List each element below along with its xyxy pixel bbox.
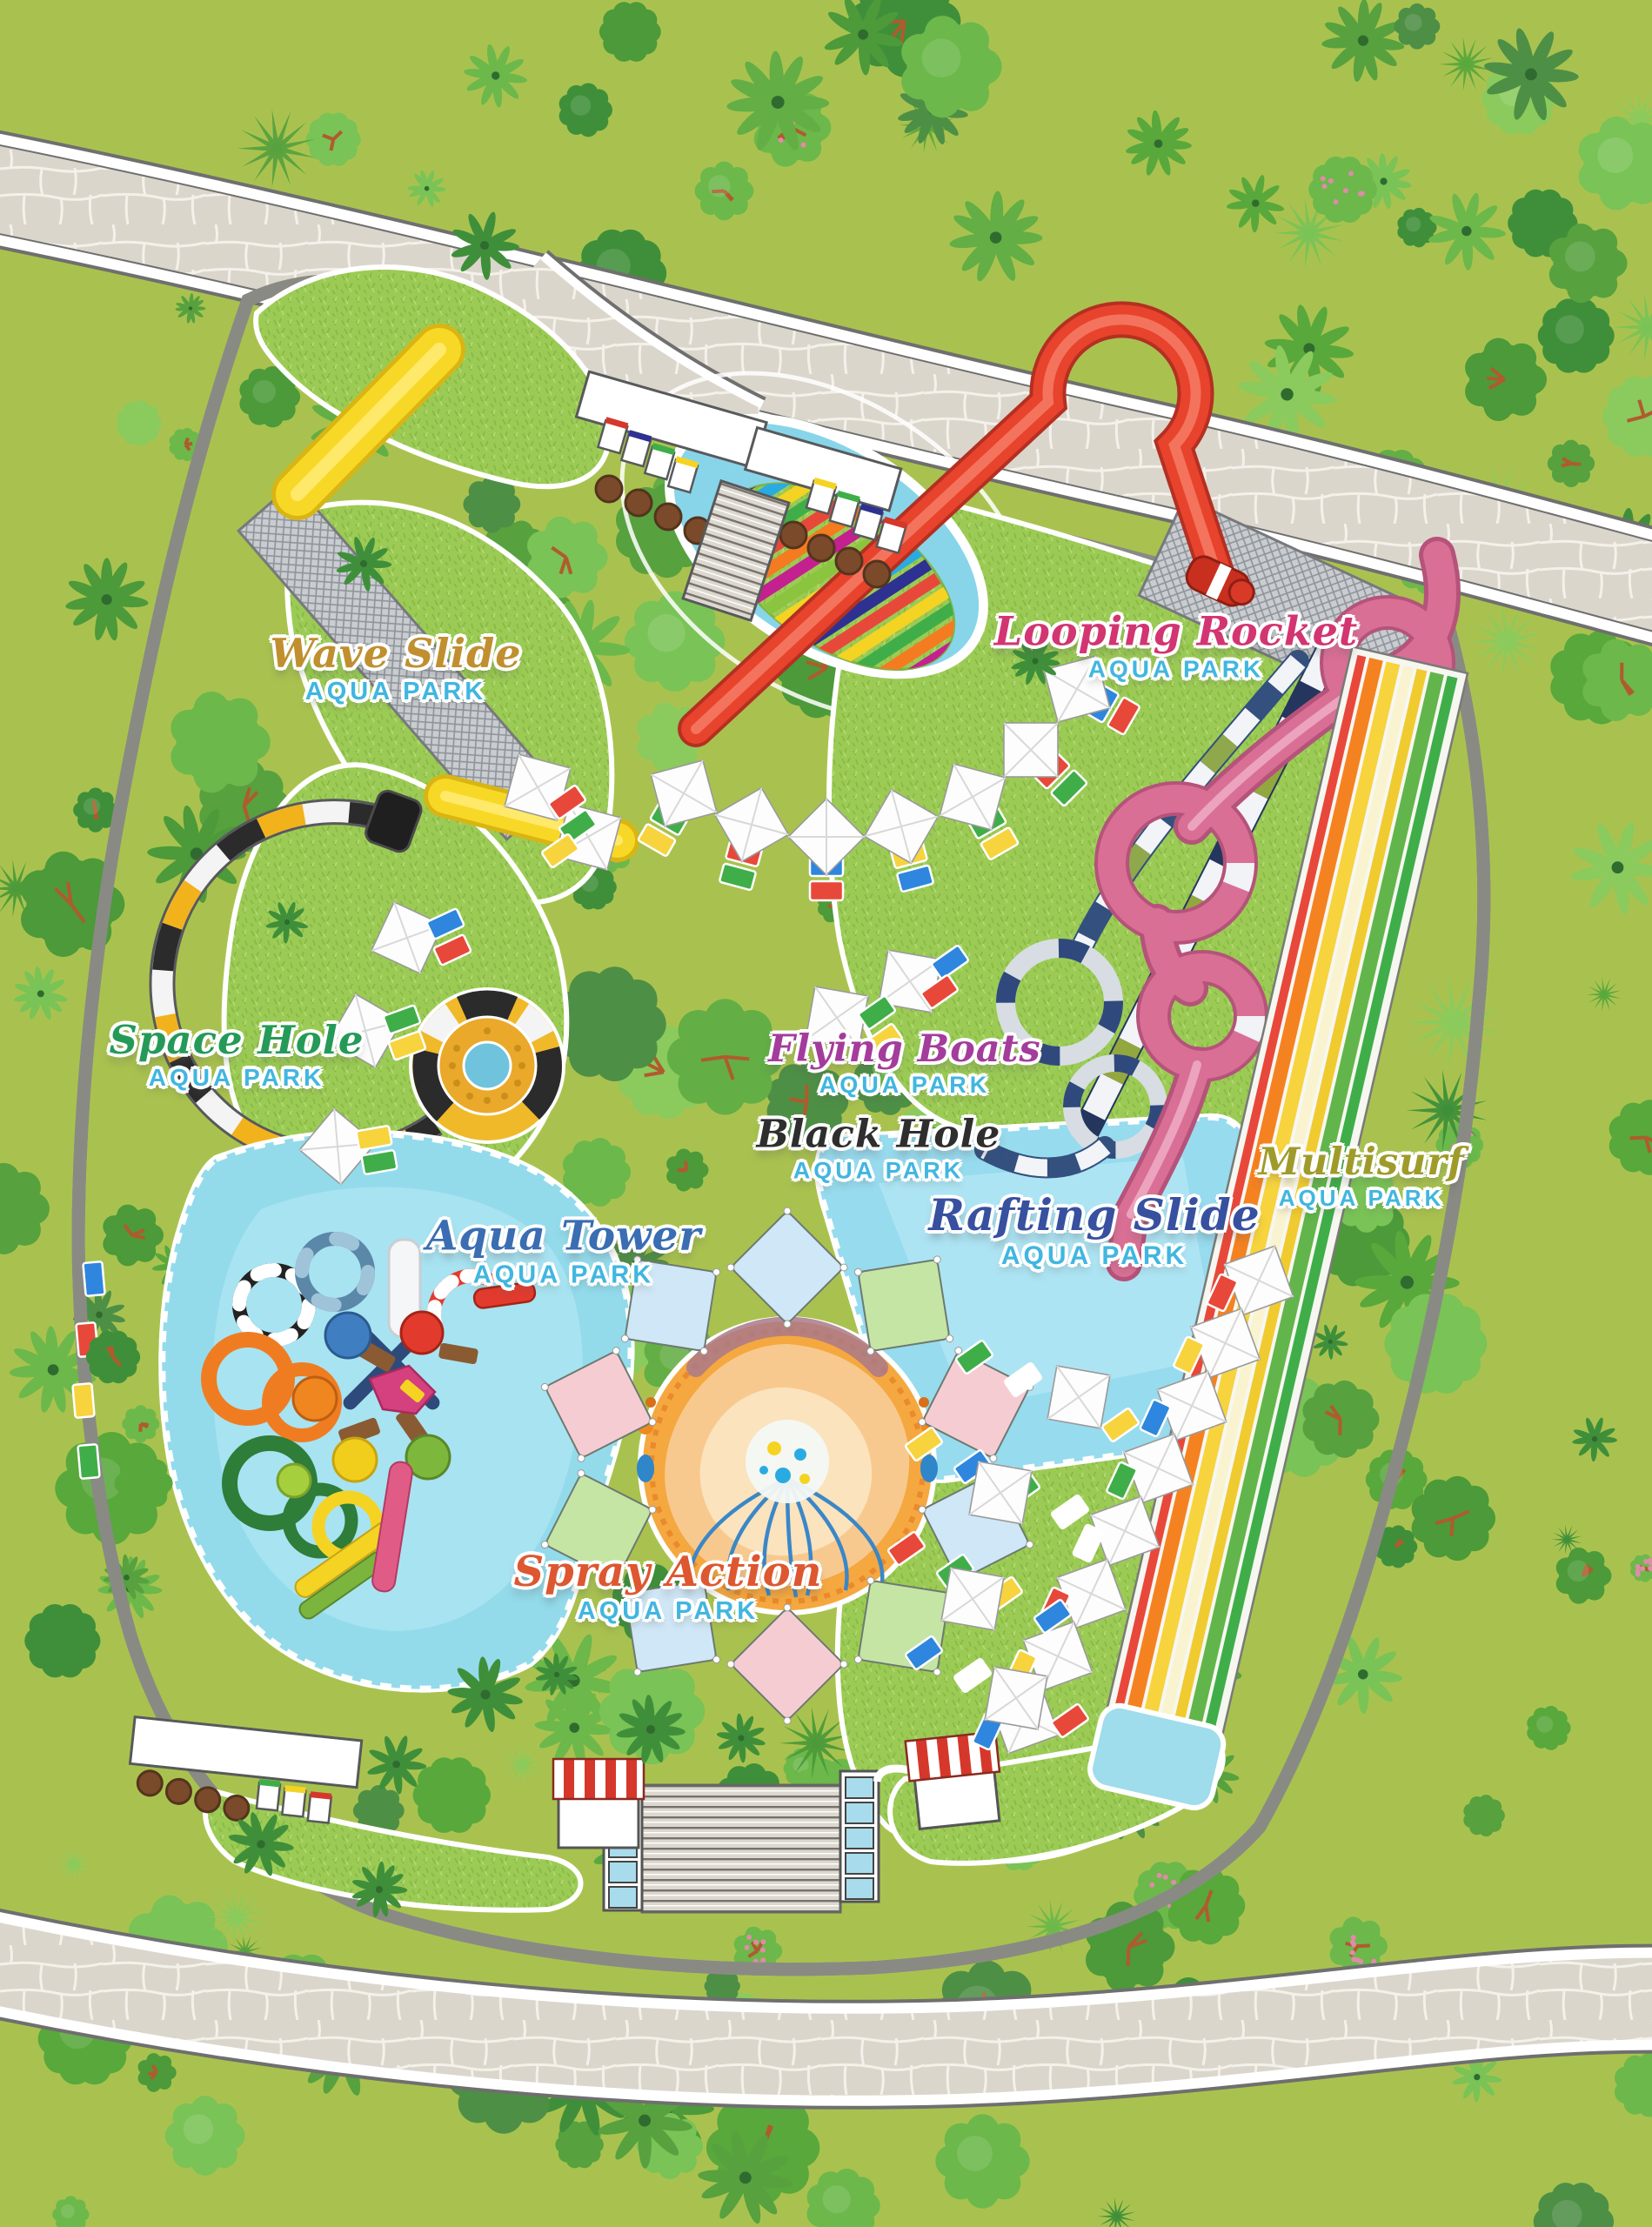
- sunbed-mat: [77, 1444, 99, 1479]
- sun-umbrella: [806, 986, 868, 1049]
- space-hole-funnel: [409, 987, 565, 1144]
- sunbed-mat: [810, 881, 843, 900]
- sunbed-mat: [72, 1383, 94, 1418]
- map-canvas: [0, 0, 1652, 2227]
- shade-sail: [854, 1576, 953, 1675]
- sun-umbrella: [985, 1667, 1047, 1729]
- aqua-park-map: Wave Slide AQUA PARK Looping Rocket AQUA…: [0, 0, 1652, 2227]
- entrance-pillar-right: [840, 1771, 879, 1902]
- sun-umbrella: [1004, 723, 1058, 777]
- sunbed-mat: [356, 1126, 391, 1150]
- shade-sail: [621, 1255, 720, 1354]
- sun-umbrella: [969, 1461, 1032, 1524]
- sun-umbrella: [941, 1568, 1004, 1630]
- entrance-bottom-stairs: [642, 1785, 840, 1912]
- sunbed-mat: [83, 1261, 104, 1296]
- kiosk-left: [553, 1759, 644, 1848]
- spray-action-pad: [637, 1316, 938, 1615]
- shade-sail: [854, 1255, 953, 1354]
- sunbed-mat: [361, 1150, 397, 1174]
- shade-sail: [621, 1576, 720, 1675]
- sun-umbrella: [1047, 1366, 1110, 1428]
